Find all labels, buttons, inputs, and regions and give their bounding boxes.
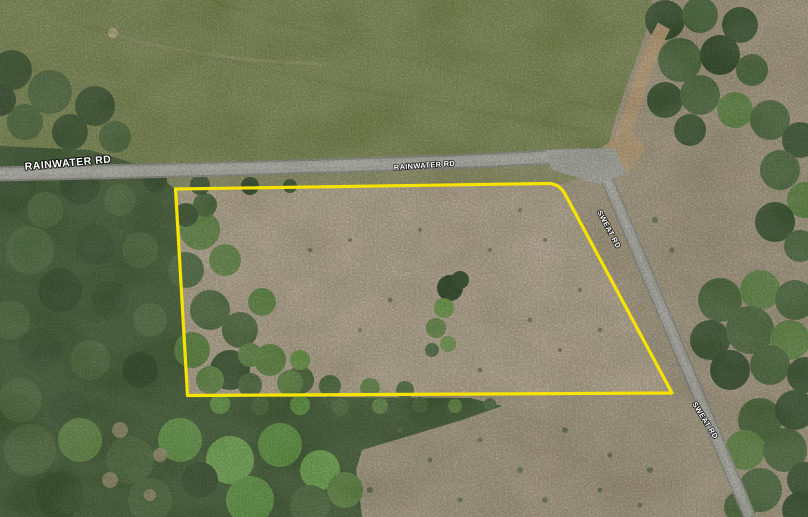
aerial-map: RAINWATER RD RAINWATER RD SWEAT RD SWEAT… xyxy=(0,0,808,517)
texture-grain xyxy=(0,0,808,517)
